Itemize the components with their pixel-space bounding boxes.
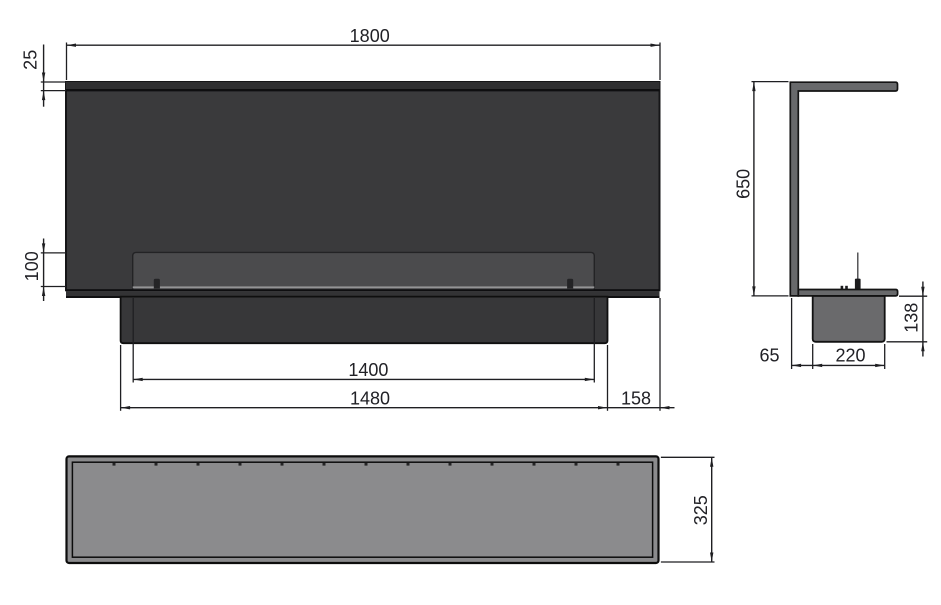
- svg-text:138: 138: [902, 303, 922, 333]
- svg-text:158: 158: [621, 389, 651, 409]
- svg-text:25: 25: [21, 50, 41, 70]
- svg-text:65: 65: [759, 345, 779, 365]
- svg-text:1400: 1400: [348, 360, 388, 380]
- svg-text:220: 220: [835, 345, 865, 365]
- svg-text:1480: 1480: [350, 389, 390, 409]
- svg-text:100: 100: [22, 251, 42, 281]
- svg-text:650: 650: [734, 169, 754, 199]
- svg-text:1800: 1800: [350, 26, 390, 46]
- svg-text:325: 325: [691, 495, 711, 525]
